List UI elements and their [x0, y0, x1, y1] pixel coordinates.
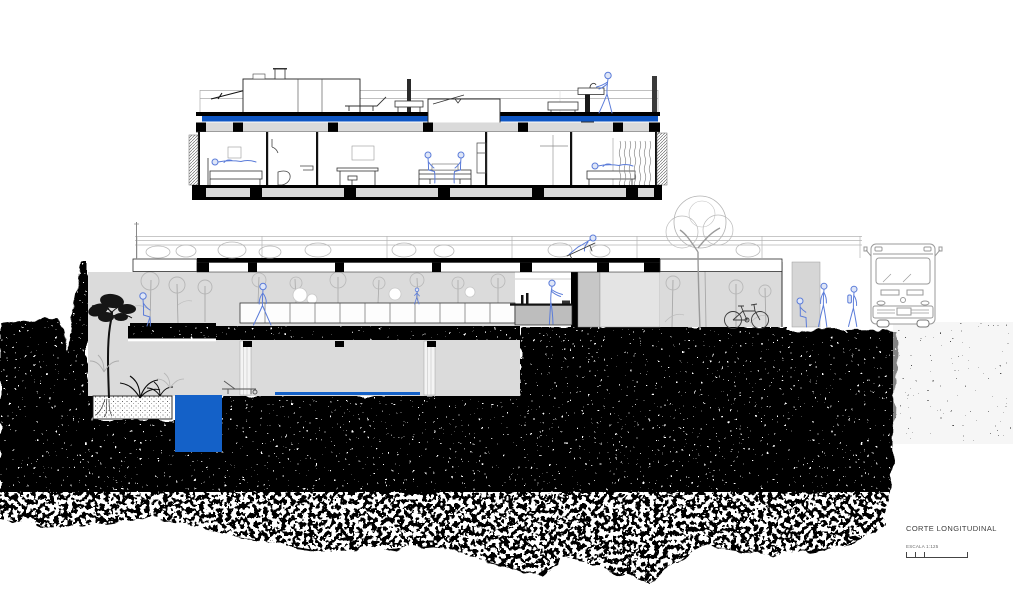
bus [864, 244, 942, 327]
chimney [273, 68, 287, 79]
water-line [275, 392, 420, 395]
drawing-title: CORTE LONGITUDINAL [906, 524, 997, 533]
roof-garden-slab [133, 258, 782, 272]
planter-box [93, 396, 172, 419]
solar-panel [211, 90, 246, 99]
skylight-box [243, 74, 360, 113]
garden-room-right [660, 272, 782, 327]
pool [175, 395, 222, 452]
roof-edge-post [652, 76, 657, 112]
roof-garden-shrubs [146, 242, 760, 258]
upper-floor-slab [192, 185, 662, 200]
title-block: CORTE LONGITUDINAL ESCALA 1:125 [906, 524, 997, 558]
sparse-speckle-area [893, 322, 1013, 444]
person-busstop-backpack [848, 286, 857, 326]
service-door-panel-2 [600, 272, 660, 327]
stair-bulkhead [428, 95, 500, 123]
service-door-panel [578, 272, 600, 327]
window-band [240, 303, 515, 323]
roof-garden-railing [134, 222, 862, 259]
ceiling-strip [196, 123, 660, 133]
upper-level-section [189, 68, 667, 200]
section-drawing-svg [0, 0, 1024, 599]
louver-left [189, 135, 198, 185]
louver-right [657, 133, 667, 185]
roof-membrane-blue-right [500, 116, 658, 122]
drawing-scale-label: ESCALA 1:125 [906, 544, 997, 549]
scale-bar [906, 551, 968, 558]
roof-membrane-blue-left [202, 116, 428, 122]
architectural-drawing-canvas: CORTE LONGITUDINAL ESCALA 1:125 [0, 0, 1024, 599]
